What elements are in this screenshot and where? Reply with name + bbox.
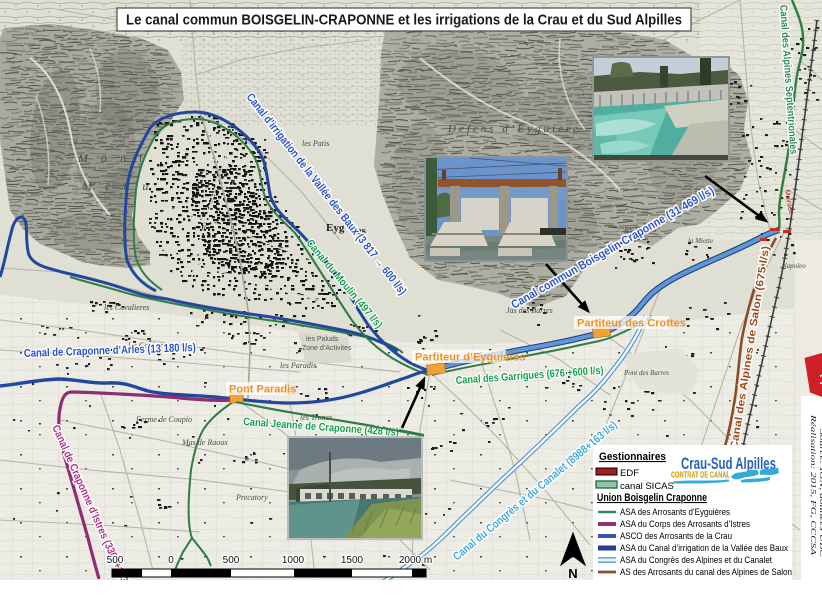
svg-text:ASA du Corps des Arrosants d’I: ASA du Corps des Arrosants d’Istres [620,519,750,529]
svg-text:500: 500 [107,555,124,566]
svg-text:la Miette: la Miette [688,237,713,245]
svg-text:Pont des Barres: Pont des Barres [623,369,669,377]
svg-text:Defens d’Eyguiere: Defens d’Eyguiere [447,123,581,135]
svg-text:Partiteur des Crottes: Partiteur des Crottes [577,318,686,330]
svg-text:Source: IGN, données UBC: Source: IGN, données UBC [818,429,822,558]
svg-text:les Patis: les Patis [302,139,329,148]
svg-text:CONTRAT DE CANAL: CONTRAT DE CANAL [671,471,730,480]
svg-text:m: m [424,555,432,566]
svg-text:Union Boisgelin Craponne: Union Boisgelin Craponne [597,492,707,504]
svg-text:M e n u: M e n u [81,179,153,193]
svg-text:AS des Arrosants du canal des: AS des Arrosants du canal des Alpines de… [620,567,792,577]
svg-text:Gestionnaires: Gestionnaires [599,451,666,463]
svg-text:Réalisation: 2015, FG, CCCSA: Réalisation: 2015, FG, CCCSA [809,414,818,556]
svg-text:Partiteur d’Eyguières: Partiteur d’Eyguières [415,352,526,364]
svg-text:ASA des Arrosants d’Eyguières: ASA des Arrosants d’Eyguières [620,507,730,517]
svg-text:500: 500 [223,555,240,566]
svg-text:Le canal commun BOISGELIN-CRAP: Le canal commun BOISGELIN-CRAPONNE et le… [126,13,682,29]
svg-text:N: N [568,566,577,581]
svg-text:ASA du Congrès des Alpines et: ASA du Congrès des Alpines et du Canalet [620,555,772,565]
svg-text:Ferme de Coupio: Ferme de Coupio [135,415,192,424]
svg-text:EDF: EDF [620,468,639,479]
svg-text:ASCO des Arrosants de la Crau: ASCO des Arrosants de la Crau [620,531,732,541]
svg-text:Mas de Raoux: Mas de Raoux [181,438,228,447]
svg-text:2000: 2000 [399,555,422,566]
svg-text:canal SICAS: canal SICAS [620,481,674,492]
svg-text:Precatory: Precatory [235,493,268,502]
svg-text:les Paluds: les Paluds [306,336,339,343]
svg-text:ASA du Canal d’irrigation de l: ASA du Canal d’irrigation de la Vallée d… [620,543,788,553]
svg-text:les Paradis: les Paradis [280,361,316,370]
svg-text:Zone d’Activites: Zone d’Activites [302,345,352,352]
svg-text:1500: 1500 [341,555,364,566]
svg-text:0: 0 [168,555,174,566]
svg-text:1000: 1000 [282,555,305,566]
svg-text:Pont Paradis: Pont Paradis [229,384,296,396]
svg-text:les Cavalieres: les Cavalieres [104,303,149,312]
